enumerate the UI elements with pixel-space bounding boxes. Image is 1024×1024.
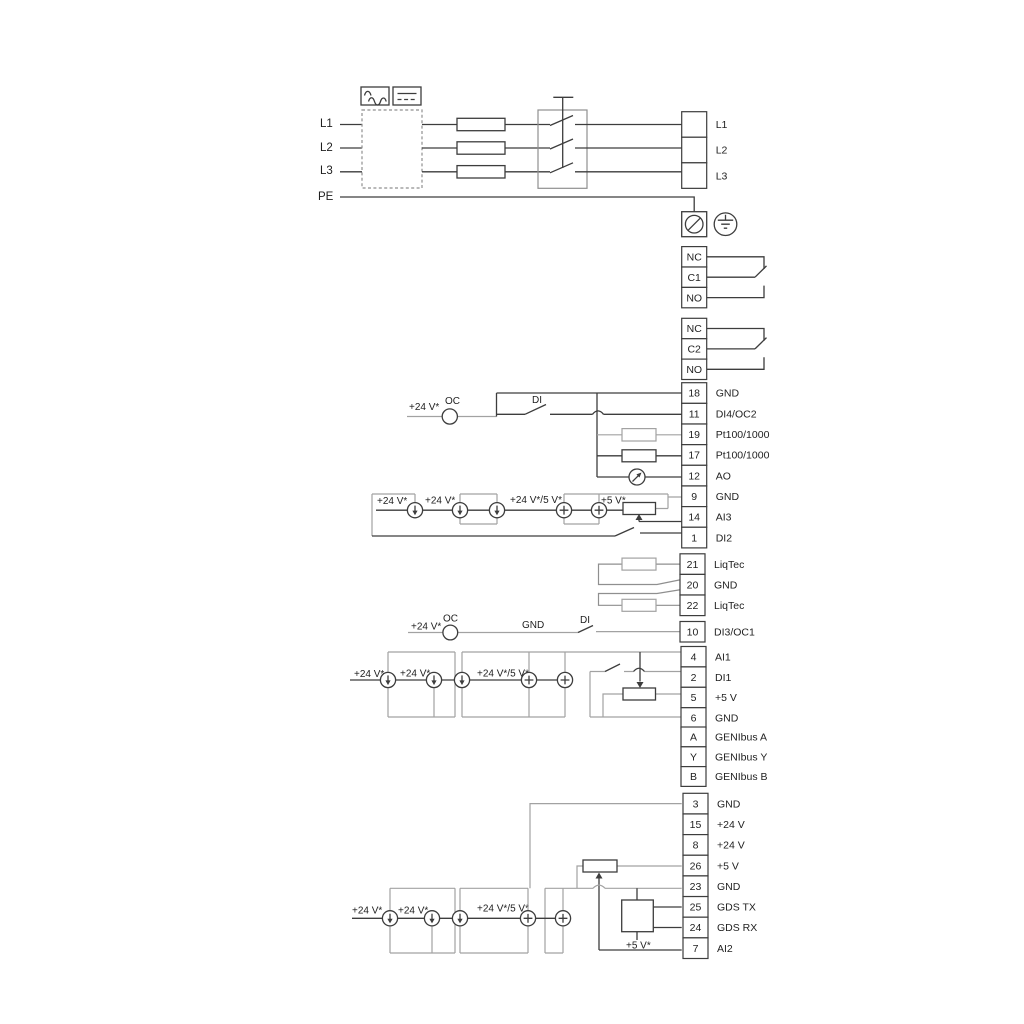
pe-wire: [340, 197, 694, 212]
terminal-number: 21: [687, 559, 699, 571]
terminal-label: AI3: [716, 512, 732, 524]
terminal-label: GND: [717, 798, 741, 810]
di1-switch: [605, 664, 620, 672]
terminal-label: +5 V: [715, 692, 737, 704]
terminal-number: NO: [686, 364, 702, 376]
filter-to-fuse-wires: [422, 125, 457, 172]
terminal-number: 15: [690, 819, 702, 831]
terminal-label: AI2: [717, 943, 733, 955]
terminal-label: L2: [716, 145, 728, 157]
line-l2-label: L2: [320, 142, 333, 154]
terminal-label: AI1: [715, 651, 731, 663]
terminal-number: 11: [689, 408, 700, 420]
v24-top-label: +24 V*: [409, 402, 439, 413]
terminal-strip-io-upper: 18GND11DI4/OC219Pt100/100017Pt100/100012…: [682, 383, 770, 548]
s1-v24-b-label: +24 V*: [425, 496, 455, 507]
pt100-sensor-19: [597, 429, 682, 441]
analog-output-meter-icon: [597, 469, 682, 485]
terminal-label: +24 V: [717, 840, 745, 852]
line-l3-label: L3: [320, 165, 333, 177]
line-l1-label: L1: [320, 118, 333, 130]
liqtec-sensor-upper: [599, 558, 682, 584]
terminal-label: GDS RX: [717, 922, 757, 934]
terminal-number: 24: [690, 922, 702, 934]
terminal-number: 3: [693, 798, 699, 810]
resistor-symbol: [622, 450, 656, 462]
fuse-to-switch-wires: [505, 125, 550, 172]
terminal-label: LiqTec: [714, 559, 744, 571]
di4-oc2-section: +24 V* OC DI: [407, 393, 682, 485]
v24-mid-label: +24 V*: [411, 622, 441, 633]
terminal-number: NO: [686, 292, 702, 304]
terminal-label: Pt100/1000: [716, 450, 770, 462]
terminal-label: DI4/OC2: [716, 408, 757, 420]
s5-v24-b-label: +24 V*: [398, 906, 428, 917]
resistor-symbol: [622, 558, 656, 570]
terminal-label: Pt100/1000: [716, 429, 770, 441]
terminal-number: 20: [687, 579, 699, 591]
open-collector-circle: [443, 625, 458, 640]
di-mid-label: DI: [580, 615, 590, 626]
terminal-strip-di3: 10DI3/OC1: [680, 622, 755, 643]
terminal-label: DI1: [715, 672, 732, 684]
terminal-number: 25: [690, 902, 702, 914]
terminal-label: GND: [717, 881, 741, 893]
terminal-number: 2: [691, 672, 697, 684]
terminal-number: 12: [688, 470, 700, 482]
terminal-label: L1: [716, 119, 728, 131]
emc-filter-box: [362, 110, 422, 188]
di3-switch: [578, 626, 593, 633]
terminal-label: GND: [716, 491, 740, 503]
relay-1-contact: [707, 257, 767, 298]
terminal-label: DI3/OC1: [714, 626, 755, 638]
terminal-label: GND: [715, 713, 739, 725]
resistor-symbol: [622, 429, 656, 441]
wiper-arrow: [596, 873, 603, 879]
ai3-potentiometer: [623, 503, 682, 522]
s1-combo-label: +24 V*/5 V*: [510, 495, 562, 506]
fuse-symbols: [457, 118, 505, 178]
terminal-number: NC: [687, 252, 703, 264]
terminal-number: 10: [687, 626, 699, 638]
terminal-strip-relay-1: NCC1NO: [682, 247, 707, 308]
terminal-label: +24 V: [717, 819, 745, 831]
terminal-strip-relay-2: NCC2NO: [682, 318, 707, 379]
line-pe-label: PE: [318, 191, 334, 203]
ai1-potentiometer: [623, 688, 656, 700]
main-disconnect-switch: [538, 97, 587, 188]
terminal-number: 17: [688, 450, 700, 462]
relay-2-contact: [707, 329, 767, 370]
ac-waveform-icon: [361, 87, 389, 105]
terminal-number: 6: [691, 713, 697, 725]
s5-v24-a-label: +24 V*: [352, 906, 382, 917]
terminal-row: [682, 137, 707, 163]
dc-icon: [393, 87, 421, 105]
terminal-label: GND: [714, 579, 738, 591]
terminal-label: LiqTec: [714, 600, 744, 612]
terminal-number: 1: [691, 532, 697, 544]
terminal-number: NC: [687, 323, 703, 335]
pt100-sensor-17: [597, 450, 682, 462]
terminal-label: +5 V: [717, 860, 739, 872]
liqtec-sensor-lower: [599, 590, 682, 612]
open-collector-circle: [442, 409, 457, 424]
terminal-number: C1: [687, 272, 701, 284]
terminal-strip-genibus: AGENIbus AYGENIbus YBGENIbus B: [681, 727, 768, 786]
di-top-label: DI: [532, 395, 542, 406]
terminal-number: 19: [688, 429, 700, 441]
screw-terminal-icon: [682, 212, 707, 237]
terminal-number: Y: [690, 751, 697, 763]
ai1-di1-section: +24 V* +24 V* +24 V*/5 V*: [350, 652, 682, 717]
terminal-label: GENIbus Y: [715, 751, 767, 763]
di3-oc1-section: +24 V* OC GND DI: [408, 614, 682, 640]
terminal-number: 14: [688, 512, 700, 524]
s5-combo-label: +24 V*/5 V*: [477, 904, 529, 915]
oc-top-label: OC: [445, 396, 460, 407]
wire-hop: [593, 411, 604, 414]
terminal-number: 26: [690, 860, 702, 872]
terminal-number: 7: [693, 943, 699, 955]
ai2-potentiometer: [583, 860, 617, 872]
wiring-diagram: L1 L2 L3 PE: [0, 0, 1024, 1024]
terminal-number: 9: [691, 491, 697, 503]
s4-v24-a-label: +24 V*: [354, 669, 384, 680]
ai3-di2-section: +24 V* +24 V* +24 V*/5 V* +5 V*: [372, 494, 682, 536]
terminal-number: 18: [688, 388, 700, 400]
terminal-label: GDS TX: [717, 902, 756, 914]
terminal-label: L3: [716, 170, 728, 182]
terminal-label: DI2: [716, 532, 733, 544]
terminal-strip-io-lower: 3GND15+24 V8+24 V26+5 V23GND25GDS TX24GD…: [683, 793, 757, 958]
terminal-label: AO: [716, 470, 731, 482]
wire-hop: [634, 668, 645, 671]
gnd-mid-label: GND: [522, 620, 544, 631]
terminal-row: [682, 163, 707, 189]
terminal-strip-io-middle: 4AI12DI15+5 V6GND: [681, 647, 739, 729]
terminal-label: GENIbus B: [715, 771, 768, 783]
terminal-label: GENIbus A: [715, 732, 767, 744]
terminal-number: C2: [687, 344, 701, 356]
terminal-number: A: [690, 732, 697, 744]
power-input-section: L1 L2 L3 PE: [318, 87, 737, 237]
di2-switch: [615, 528, 634, 537]
terminal-strip-mains-output: L1L2L3: [682, 112, 728, 189]
terminal-label: GND: [716, 388, 740, 400]
terminal-strip-liqtec: 21LiqTec20GND22LiqTec: [680, 554, 744, 616]
terminal-number: 4: [691, 651, 697, 663]
gnd-18-wire: [497, 393, 682, 417]
liqtec-section: [599, 558, 682, 611]
terminal-number: 23: [690, 881, 702, 893]
di2-wire: [372, 533, 682, 536]
s4-v24-b-label: +24 V*: [400, 669, 430, 680]
wiring-diagram-page: L1 L2 L3 PE: [0, 0, 1024, 1024]
terminal-number: B: [690, 771, 697, 783]
earth-ground-icon: [714, 213, 737, 236]
wiper-arrow: [637, 682, 644, 688]
input-wires: [340, 125, 362, 172]
terminal-number: 5: [691, 692, 697, 704]
s1-v24-a-label: +24 V*: [377, 496, 407, 507]
switch-to-terminal-wires: [575, 125, 682, 172]
resistor-symbol: [622, 599, 656, 611]
oc-mid-label: OC: [443, 614, 458, 625]
gds-sensor-box: [622, 888, 682, 940]
terminal-number: 8: [693, 840, 699, 852]
terminal-number: 22: [687, 600, 699, 612]
terminal-row: [682, 112, 707, 138]
ai2-gds-section: +24 V* +24 V* +24 V*/5 V* +5 V*: [352, 804, 682, 953]
